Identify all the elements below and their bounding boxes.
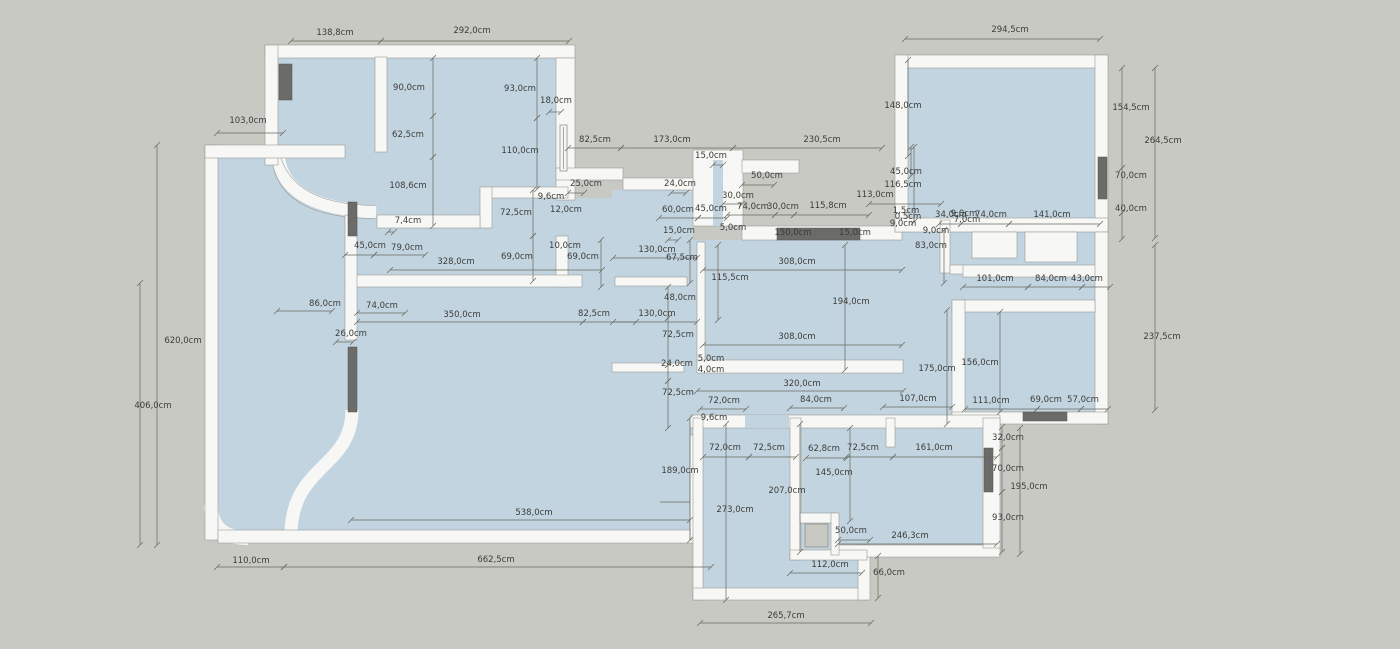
dimension-label: 154,5cm: [1112, 103, 1149, 113]
dimension-label: 34,0cm: [935, 210, 967, 220]
dimension-label: 264,5cm: [1144, 136, 1181, 146]
dimension-label: 74,0cm: [975, 210, 1007, 220]
dimension-label: 273,0cm: [716, 505, 753, 515]
dimension-label: 138,8cm: [316, 28, 353, 38]
dimension-label: 620,0cm: [164, 336, 201, 346]
column-pillar: [805, 524, 828, 547]
dimension-label: 26,0cm: [335, 329, 367, 339]
dimension-label: 148,0cm: [884, 101, 921, 111]
dimension-label: 72,5cm: [753, 443, 785, 453]
dimension-label: 113,0cm: [856, 190, 893, 200]
dimension-label: 116,5cm: [884, 180, 921, 190]
dimension-label: 406,0cm: [134, 401, 171, 411]
dimension-label: 103,0cm: [229, 116, 266, 126]
dimension-label: 112,0cm: [811, 560, 848, 570]
dimension-label: 237,5cm: [1143, 332, 1180, 342]
dimension-label: 84,0cm: [1035, 274, 1067, 284]
dimension-label: 45,0cm: [354, 241, 386, 251]
dimension-label: 69,0cm: [567, 252, 599, 262]
dimension-label: 15,0cm: [663, 226, 695, 236]
dimension-label: 294,5cm: [991, 25, 1028, 35]
dimension-label: 145,0cm: [815, 468, 852, 478]
dimension-label: 5,0cm: [720, 223, 746, 233]
dimension-label: 207,0cm: [768, 486, 805, 496]
dimension-label: 265,7cm: [767, 611, 804, 621]
dimension-label: 141,0cm: [1033, 210, 1070, 220]
dimension-label: 161,0cm: [915, 443, 952, 453]
dimension-label: 69,0cm: [501, 252, 533, 262]
dimension-label: 74,0cm: [366, 301, 398, 311]
dimension-label: 86,0cm: [309, 299, 341, 309]
dimension-label: 110,0cm: [232, 556, 269, 566]
dimension-label: 62,8cm: [808, 444, 840, 454]
dimension-label: 62,5cm: [392, 130, 424, 140]
dimension-label: 15,0cm: [839, 228, 871, 238]
dimension-label: 9,6cm: [538, 192, 564, 202]
dimension-label: 9,6cm: [701, 413, 727, 423]
dimension-label: 30,0cm: [767, 202, 799, 212]
dimension-label: 246,3cm: [891, 531, 928, 541]
dimension-label: 50,0cm: [751, 171, 783, 181]
dimension-label: 40,0cm: [1115, 204, 1147, 214]
dimension-label: 111,0cm: [972, 396, 1009, 406]
dimension-label: 101,0cm: [976, 274, 1013, 284]
dimension-label: 79,0cm: [391, 243, 423, 253]
window: [560, 125, 567, 171]
dimension-label: 45,0cm: [695, 204, 727, 214]
dimension-label: 5,0cm: [698, 354, 724, 364]
dimension-label: 175,0cm: [918, 364, 955, 374]
dimension-label: 50,0cm: [835, 526, 867, 536]
dimension-label: 69,0cm: [1030, 395, 1062, 405]
dimension-label: 24,0cm: [664, 179, 696, 189]
dimension-label: 72,0cm: [708, 396, 740, 406]
dimension-label: 189,0cm: [661, 466, 698, 476]
dimension-label: 320,0cm: [783, 379, 820, 389]
dimension-label: 150,0cm: [774, 228, 811, 238]
dimension-label: 66,0cm: [873, 568, 905, 578]
dimension-label: 24,0cm: [661, 359, 693, 369]
dimension-label: 130,0cm: [638, 309, 675, 319]
dimension-label: 45,0cm: [890, 167, 922, 177]
dimension-label: 30,0cm: [722, 191, 754, 201]
dimension-label: 350,0cm: [443, 310, 480, 320]
dimension-label: 173,0cm: [653, 135, 690, 145]
dimension-label: 57,0cm: [1067, 395, 1099, 405]
dimension-label: 230,5cm: [803, 135, 840, 145]
dimension-label: 72,5cm: [847, 443, 879, 453]
dimension-label: 43,0cm: [1071, 274, 1103, 284]
dimension-label: 194,0cm: [832, 297, 869, 307]
dimension-label: 74,0cm: [737, 202, 769, 212]
dimension-label: 308,0cm: [778, 257, 815, 267]
dimension-label: 662,5cm: [477, 555, 514, 565]
dimension-label: 195,0cm: [1010, 482, 1047, 492]
dimension-label: 72,5cm: [662, 330, 694, 340]
dimension-label: 72,5cm: [500, 208, 532, 218]
dimension-label: 4,0cm: [698, 365, 724, 375]
dimension-label: 72,0cm: [709, 443, 741, 453]
dimension-label: 12,0cm: [550, 205, 582, 215]
dimension-label: 308,0cm: [778, 332, 815, 342]
dimension-label: 108,6cm: [389, 181, 426, 191]
dimension-label: 70,0cm: [1115, 171, 1147, 181]
dimension-label: 156,0cm: [961, 358, 998, 368]
floor-plan-stage: 138,8cm292,0cm294,5cm103,0cm90,0cm62,5cm…: [0, 0, 1400, 649]
dimension-label: 115,8cm: [809, 201, 846, 211]
dimension-label: 18,0cm: [540, 96, 572, 106]
dimension-label: 115,5cm: [711, 273, 748, 283]
dimension-label: 32,0cm: [992, 433, 1024, 443]
dimension-label: 110,0cm: [501, 146, 538, 156]
dimension-label: 82,5cm: [578, 309, 610, 319]
dimension-label: 538,0cm: [515, 508, 552, 518]
dimension-label: 25,0cm: [570, 179, 602, 189]
dimension-label: 72,5cm: [662, 388, 694, 398]
dimension-label: 48,0cm: [664, 293, 696, 303]
dimension-label: 9,0cm: [890, 219, 916, 229]
dimension-label: 15,0cm: [695, 151, 727, 161]
dimension-label: 84,0cm: [800, 395, 832, 405]
dimension-label: 83,0cm: [915, 241, 947, 251]
dimension-label: 10,0cm: [549, 241, 581, 251]
floor-plan-canvas[interactable]: 138,8cm292,0cm294,5cm103,0cm90,0cm62,5cm…: [0, 0, 1400, 649]
dimension-label: 9,0cm: [923, 226, 949, 236]
dimension-label: 60,0cm: [662, 205, 694, 215]
dimension-label: 67,5cm: [666, 253, 698, 263]
dimension-label: 90,0cm: [393, 83, 425, 93]
dimension-label: 70,0cm: [992, 464, 1024, 474]
dimension-label: 93,0cm: [504, 84, 536, 94]
dimension-label: 82,5cm: [579, 135, 611, 145]
dimension-label: 107,0cm: [899, 394, 936, 404]
dimension-label: 93,0cm: [992, 513, 1024, 523]
dimension-label: 292,0cm: [453, 26, 490, 36]
dimension-label: 7,4cm: [395, 216, 421, 226]
dimension-label: 328,0cm: [437, 257, 474, 267]
